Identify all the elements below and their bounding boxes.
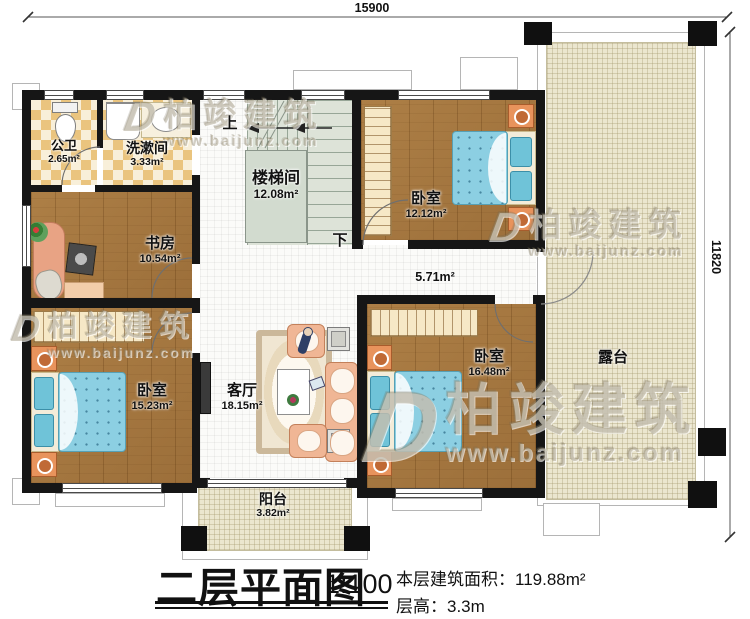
bedroom-top-label: 卧室 12.12m² — [406, 191, 447, 220]
living-room-name: 客厅 — [222, 383, 263, 400]
column — [524, 22, 552, 45]
washroom-name: 洗漱间 — [126, 141, 168, 157]
window — [62, 483, 162, 493]
ledge — [293, 70, 412, 90]
balcony-sliding-door — [207, 479, 347, 488]
wall-segment — [192, 175, 200, 264]
wall-segment — [352, 90, 361, 242]
pillow — [370, 376, 390, 410]
stairwell-area: 12.08m² — [252, 188, 300, 201]
wall-segment — [22, 90, 31, 493]
nightstand — [367, 345, 392, 370]
bedroom-top-area: 12.12m² — [406, 208, 447, 220]
terrace-label: 露台 — [598, 350, 628, 367]
title-underline — [155, 601, 388, 604]
floor-height-value: 3.3m — [447, 597, 485, 616]
stair-down-text: 下 — [332, 233, 347, 250]
window — [398, 90, 490, 100]
flower-decor — [287, 394, 299, 406]
coffee-table — [277, 369, 310, 415]
plan-scale: 1:100 — [325, 569, 393, 600]
nightstand — [31, 346, 57, 371]
balcony-name: 阳台 — [256, 492, 289, 508]
column — [688, 481, 717, 508]
armchair-cushion — [297, 430, 321, 452]
sofa-cushion — [330, 430, 355, 456]
washroom-label: 洗漱间 3.33m² — [126, 141, 168, 168]
pillow — [510, 137, 532, 167]
wall-segment — [97, 100, 103, 148]
wall-segment — [352, 240, 363, 249]
bedroom-right-label: 卧室 16.48m² — [469, 349, 510, 378]
ledge — [392, 498, 482, 511]
wardrobe — [33, 311, 145, 343]
wardrobe — [370, 309, 478, 337]
ledge — [543, 503, 600, 536]
bedroom-left-label: 卧室 15.23m² — [132, 383, 173, 412]
stair-treads — [307, 100, 352, 245]
terrace-floor — [546, 42, 696, 500]
dimension-ticks-right — [725, 27, 735, 542]
bedroom-left-area: 15.23m² — [132, 400, 173, 412]
wall-segment — [22, 298, 200, 308]
floor-height-line: 层高：3.3m — [396, 592, 485, 617]
washroom-area: 3.33m² — [126, 157, 168, 169]
wall-segment — [22, 185, 62, 192]
pillow — [34, 377, 54, 410]
bedroom-left-name: 卧室 — [132, 383, 173, 400]
floor-plan-canvas: D 柏竣建筑 www.baijunz.com D 柏竣建筑 www.baijun… — [0, 0, 750, 619]
study-area: 10.54m² — [140, 253, 181, 265]
bathroom-label: 公卫 2.65m² — [48, 139, 80, 165]
computer-monitor — [65, 242, 96, 275]
balcony-area: 3.82m² — [256, 508, 289, 520]
study-name: 书房 — [140, 236, 181, 253]
wall-segment — [533, 295, 545, 304]
study-label: 书房 10.54m² — [140, 236, 181, 265]
bedroom-right-name: 卧室 — [469, 349, 510, 366]
ledge — [55, 493, 165, 507]
wall-segment — [192, 353, 200, 483]
wall-segment — [357, 295, 367, 498]
side-table — [327, 327, 350, 351]
pillow — [34, 414, 54, 447]
tv — [200, 362, 211, 414]
pillow — [510, 171, 532, 201]
wall-segment — [536, 304, 545, 498]
ledge — [460, 57, 518, 90]
sink — [151, 107, 181, 132]
toilet-tank — [52, 102, 78, 113]
bedroom-right-area: 16.48m² — [469, 366, 510, 378]
floor-area-label: 本层建筑面积： — [396, 570, 515, 589]
person-head — [303, 327, 313, 337]
wall-segment — [192, 90, 200, 135]
column — [344, 526, 370, 551]
nightstand — [508, 104, 534, 128]
balcony-label: 阳台 3.82m² — [256, 492, 289, 519]
window — [395, 488, 483, 498]
wall-segment — [95, 185, 197, 192]
corridor-label: 5.71m² — [415, 270, 455, 284]
stair-down-label: 下 — [332, 233, 347, 250]
window — [203, 90, 245, 100]
terrace-name: 露台 — [598, 350, 628, 367]
column — [688, 21, 717, 46]
sofa-cushion — [330, 368, 355, 394]
bathroom-area: 2.65m² — [48, 154, 80, 165]
stair-up-label: 上 — [222, 116, 237, 133]
title-underline — [155, 607, 388, 609]
plant — [28, 222, 48, 242]
corridor-area: 5.71m² — [415, 270, 455, 284]
dimension-top: 15900 — [355, 1, 390, 15]
stairwell-name: 楼梯间 — [252, 170, 300, 188]
column — [698, 428, 726, 456]
floor-height-label: 层高： — [396, 597, 447, 616]
pillow — [370, 413, 390, 447]
column — [181, 526, 207, 551]
floor-area-value: 119.88m² — [515, 570, 586, 589]
living-room-area: 18.15m² — [222, 400, 263, 412]
sofa-cushion — [330, 398, 355, 424]
window — [301, 90, 345, 100]
wall-segment — [536, 90, 545, 252]
nightstand — [31, 452, 57, 477]
wall-segment — [357, 295, 495, 304]
washing-machine — [106, 102, 140, 140]
stairwell-label: 楼梯间 12.08m² — [252, 170, 300, 201]
bedroom-top-name: 卧室 — [406, 191, 447, 208]
window — [22, 205, 31, 267]
dimension-right: 11820 — [709, 235, 723, 279]
nightstand — [508, 207, 534, 231]
living-room-label: 客厅 18.15m² — [222, 383, 263, 412]
floor-area-line: 本层建筑面积：119.88m² — [396, 565, 586, 590]
wardrobe — [364, 106, 392, 236]
bathroom-name: 公卫 — [48, 139, 80, 154]
stair-upper-flight — [247, 100, 307, 150]
nightstand — [367, 451, 392, 476]
stair-up-text: 上 — [222, 116, 237, 133]
window — [44, 90, 74, 100]
window — [106, 90, 144, 100]
wall-segment — [408, 240, 545, 249]
